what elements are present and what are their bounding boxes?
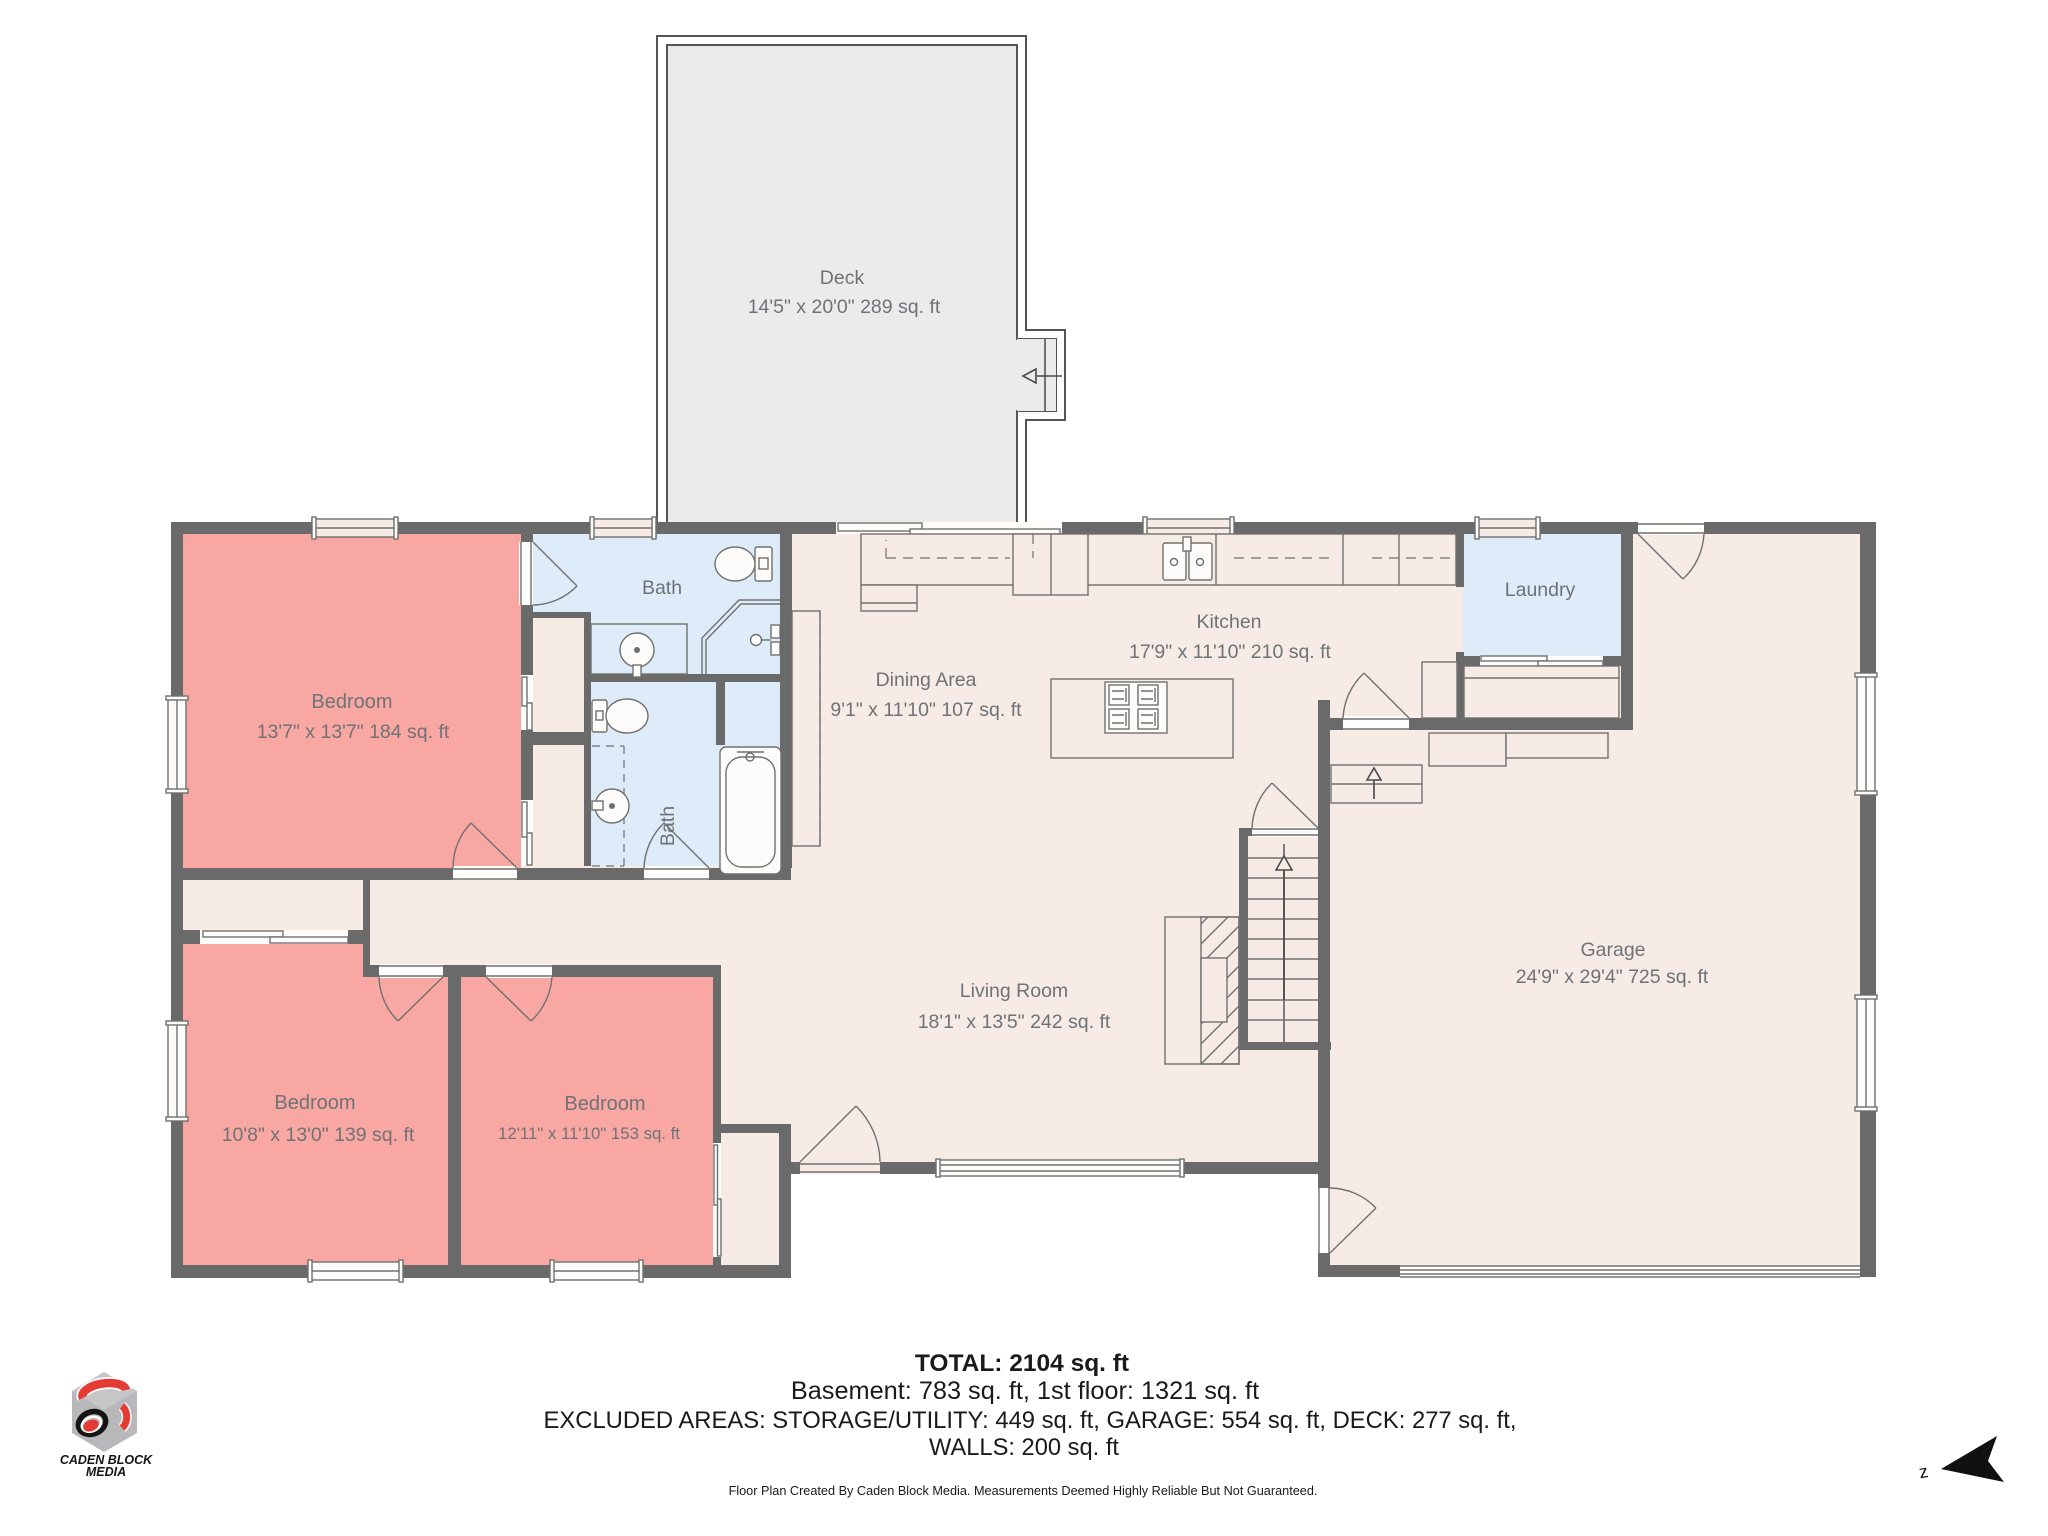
svg-text:17'9" x 11'10" 210 sq. ft: 17'9" x 11'10" 210 sq. ft bbox=[1129, 641, 1332, 663]
svg-text:18'1" x 13'5" 242 sq. ft: 18'1" x 13'5" 242 sq. ft bbox=[918, 1011, 1111, 1033]
svg-text:10'8" x 13'0" 139 sq. ft: 10'8" x 13'0" 139 sq. ft bbox=[222, 1124, 415, 1146]
svg-text:Basement: 783 sq. ft, 1st floo: Basement: 783 sq. ft, 1st floor: 1321 sq… bbox=[791, 1377, 1259, 1405]
svg-text:Bath: Bath bbox=[642, 577, 682, 599]
svg-text:Laundry: Laundry bbox=[1505, 579, 1576, 601]
svg-text:Garage: Garage bbox=[1580, 939, 1645, 961]
svg-text:TOTAL: 2104 sq. ft: TOTAL: 2104 sq. ft bbox=[915, 1350, 1129, 1377]
svg-text:Kitchen: Kitchen bbox=[1196, 611, 1261, 633]
svg-text:Living Room: Living Room bbox=[960, 980, 1068, 1002]
svg-text:Deck: Deck bbox=[820, 267, 865, 289]
svg-text:Dining Area: Dining Area bbox=[876, 669, 977, 691]
svg-text:WALLS: 200 sq. ft: WALLS: 200 sq. ft bbox=[929, 1435, 1119, 1461]
svg-text:Bath: Bath bbox=[657, 806, 679, 846]
svg-text:Floor Plan Created By Caden Bl: Floor Plan Created By Caden Block Media.… bbox=[729, 1484, 1318, 1498]
svg-text:Bedroom: Bedroom bbox=[274, 1092, 355, 1114]
svg-text:24'9" x 29'4" 725 sq. ft: 24'9" x 29'4" 725 sq. ft bbox=[1516, 966, 1709, 988]
svg-text:Bedroom: Bedroom bbox=[564, 1093, 645, 1115]
svg-text:9'1" x 11'10" 107 sq. ft: 9'1" x 11'10" 107 sq. ft bbox=[830, 699, 1022, 721]
svg-text:14'5" x 20'0" 289 sq. ft: 14'5" x 20'0" 289 sq. ft bbox=[748, 296, 941, 318]
svg-text:13'7" x 13'7" 184 sq. ft: 13'7" x 13'7" 184 sq. ft bbox=[257, 721, 450, 743]
svg-text:Bedroom: Bedroom bbox=[311, 691, 392, 713]
svg-text:MEDIA: MEDIA bbox=[86, 1465, 126, 1479]
svg-text:12'11" x 11'10" 153 sq. ft: 12'11" x 11'10" 153 sq. ft bbox=[498, 1124, 680, 1143]
svg-text:EXCLUDED AREAS: STORAGE/UTILIT: EXCLUDED AREAS: STORAGE/UTILITY: 449 sq.… bbox=[544, 1407, 1517, 1434]
